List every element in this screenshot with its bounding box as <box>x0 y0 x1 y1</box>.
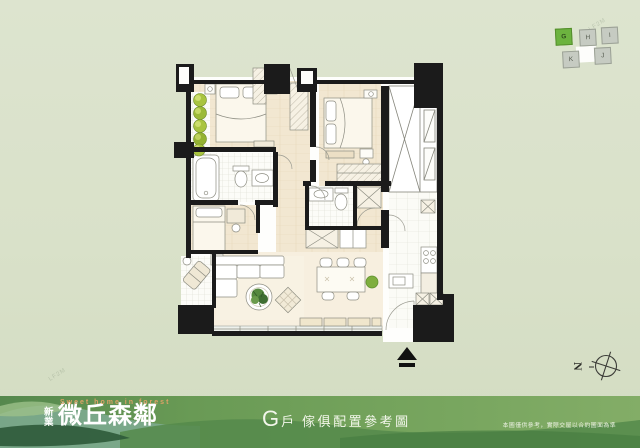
toilet-icon <box>335 188 348 210</box>
brand-name-large: 微丘森鄰 <box>58 403 158 429</box>
stove-icon <box>421 247 437 273</box>
plan-caption: G 戶 傢俱配置參考圖 <box>262 407 411 431</box>
kitchen-sink-icon <box>389 274 413 288</box>
floorplan-poster: LF2M LF2M LF2M LF2M LF2M G H I K J <box>0 0 640 448</box>
brand-logo: 新業 微丘森鄰 <box>44 403 158 429</box>
sink-icon <box>252 170 273 186</box>
window-bench <box>300 318 381 326</box>
tv-shelf-icon <box>254 141 274 147</box>
corridor-floor <box>276 147 310 252</box>
entrance-arrow-icon <box>397 347 417 367</box>
caption-unit-suffix: 戶 <box>281 411 294 430</box>
disclaimer-text: 本圖僅供參考，實際交屋以合約圖面為準 <box>503 420 616 429</box>
master-bed-icon <box>324 90 377 165</box>
footer-band: 新業 微丘森鄰 Sweet home in forest G 戶 傢俱配置參考圖… <box>0 396 640 448</box>
floorplan-drawing: N <box>0 0 640 448</box>
compass-north-label: N <box>571 362 585 371</box>
dining-plant-icon <box>366 276 378 288</box>
caption-title: 傢俱配置參考圖 <box>302 411 411 430</box>
caption-unit-letter: G <box>262 407 279 431</box>
side-table-icon <box>183 257 191 265</box>
master-wardrobe-icon <box>337 164 382 182</box>
bathtub-icon <box>193 155 219 201</box>
compass-icon: N <box>571 347 625 385</box>
brand-tagline: Sweet home in forest <box>60 399 170 406</box>
brand-name-small: 新業 <box>44 408 55 428</box>
